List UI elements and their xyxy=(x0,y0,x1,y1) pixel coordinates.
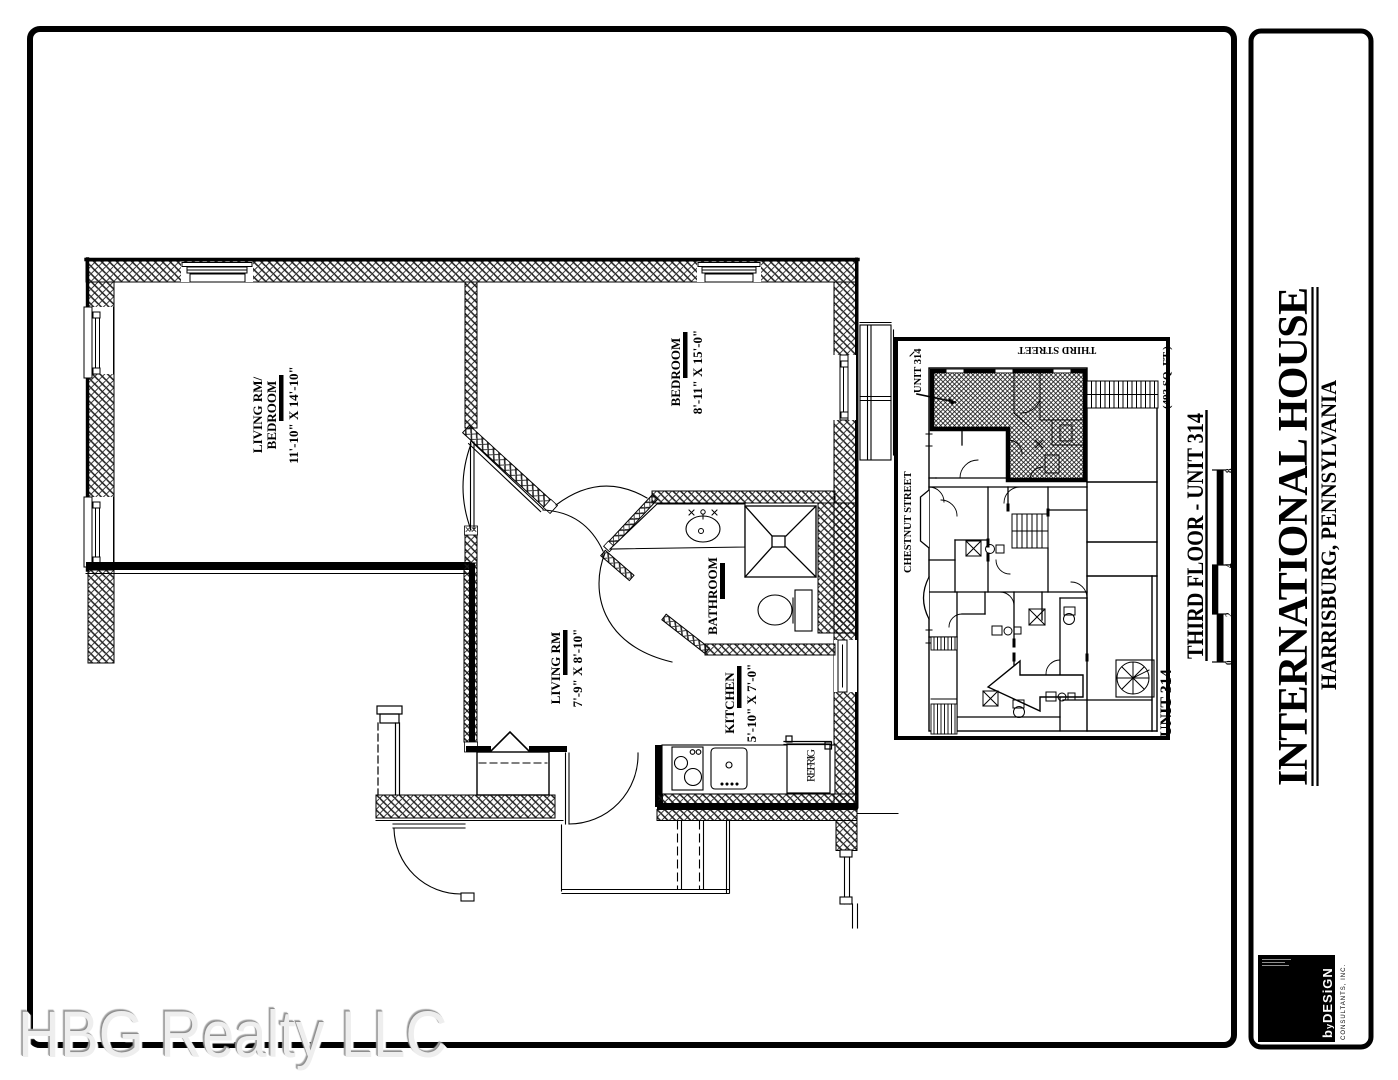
svg-text:KITCHEN: KITCHEN xyxy=(722,672,737,734)
svg-text:4: 4 xyxy=(1224,563,1234,568)
svg-text:(493 SQ. FT.): (493 SQ. FT.) xyxy=(1161,346,1173,409)
svg-text:0: 0 xyxy=(1224,660,1234,665)
svg-text:CHESTNUT STREET: CHESTNUT STREET xyxy=(903,471,914,573)
svg-text:REFRIG: REFRIG xyxy=(806,749,818,782)
svg-text:7'-9" X 8'-10": 7'-9" X 8'-10" xyxy=(570,629,585,708)
svg-text:UNIT 314: UNIT 314 xyxy=(1158,669,1175,737)
svg-text:5'-10" X 7'-0": 5'-10" X 7'-0" xyxy=(744,664,759,743)
svg-text:BEDROOM: BEDROOM xyxy=(264,381,279,450)
svg-text:UNIT 314: UNIT 314 xyxy=(913,348,924,393)
svg-text:LIVING RM/: LIVING RM/ xyxy=(250,377,265,454)
svg-text:11'-10" X 14'-10": 11'-10" X 14'-10" xyxy=(286,366,301,464)
svg-text:BATHROOM: BATHROOM xyxy=(705,557,720,635)
svg-text:HARRISBURG, PENNSYLVANIA: HARRISBURG, PENNSYLVANIA xyxy=(1316,380,1341,690)
svg-text:BEDROOM: BEDROOM xyxy=(668,338,683,407)
svg-text:THIRD STREET: THIRD STREET xyxy=(1018,344,1096,355)
svg-text:8'-11" X 15'-0": 8'-11" X 15'-0" xyxy=(690,330,705,415)
svg-text:8: 8 xyxy=(1224,468,1234,473)
svg-text:2: 2 xyxy=(1224,612,1234,617)
svg-text:LIVING RM: LIVING RM xyxy=(548,632,563,705)
svg-text:CONSULTANTS, INC.: CONSULTANTS, INC. xyxy=(1341,964,1347,1040)
svg-text:INTERNATIONAL HOUSE: INTERNATIONAL HOUSE xyxy=(1271,287,1317,786)
svg-text:THIRD FLOOR - UNIT 314: THIRD FLOOR - UNIT 314 xyxy=(1183,413,1208,659)
